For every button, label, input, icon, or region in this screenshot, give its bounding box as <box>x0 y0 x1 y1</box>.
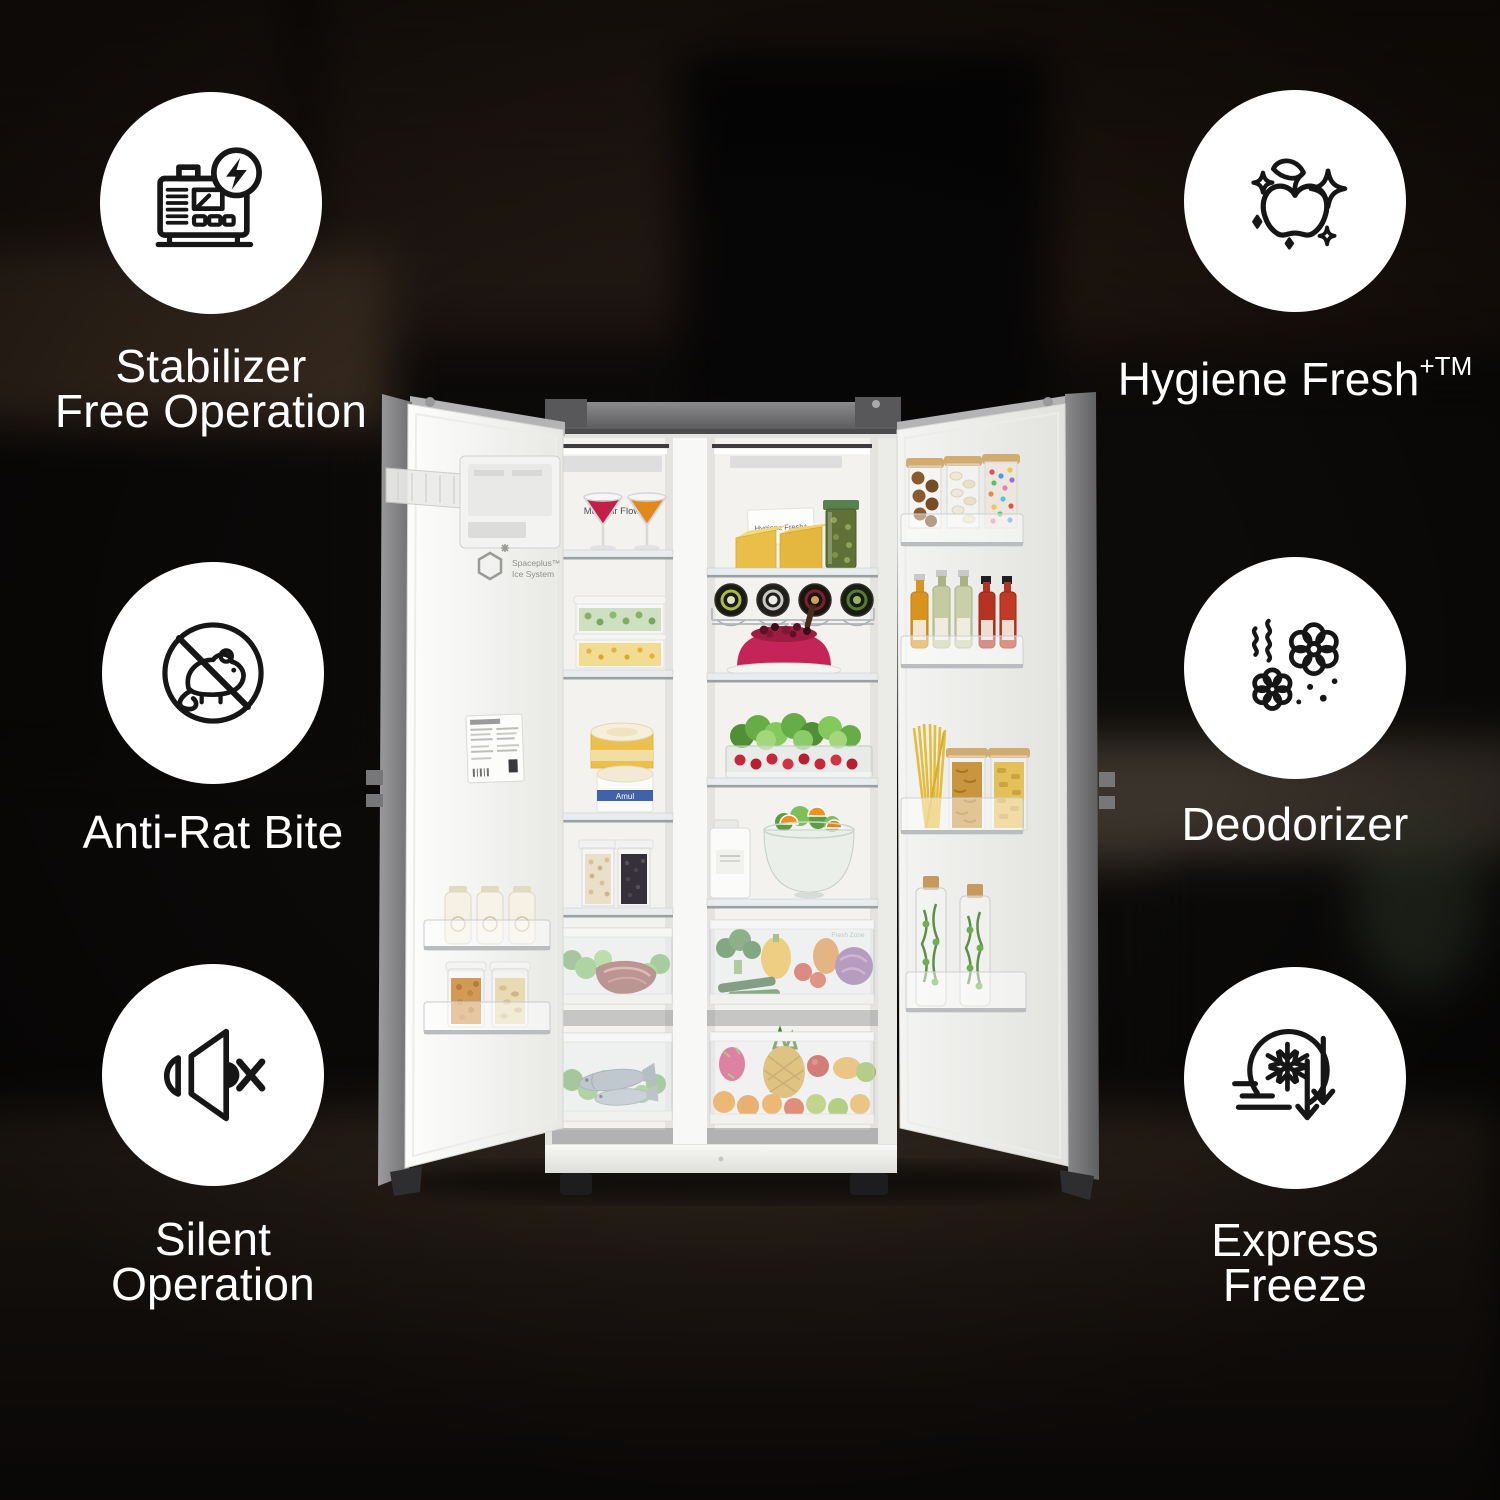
refrigerator-image: Multi Air Flow <box>360 380 1150 1210</box>
feature-badge <box>102 562 324 784</box>
feature-anti-rat-bite: Anti-Rat Bite <box>0 562 433 855</box>
freezer-shelf-icecream: Amul <box>591 723 653 812</box>
svg-text:Ice System: Ice System <box>512 569 554 579</box>
feature-label: Deodorizer <box>1075 802 1500 847</box>
icecream-brand-label: Amul <box>616 792 634 801</box>
freezer-shelf-containers <box>574 596 666 668</box>
speaker-mute-icon <box>147 1009 279 1141</box>
deodorizer-flowers-icon <box>1229 602 1361 734</box>
feature-label: Silent Operation <box>0 1217 433 1307</box>
stabilizer-icon <box>145 137 277 269</box>
anti-rat-icon <box>147 607 279 739</box>
apple-sparkles-icon <box>1229 135 1361 267</box>
svg-text:Spaceplus™: Spaceplus™ <box>512 558 560 568</box>
feature-label: Express Freeze <box>1075 1218 1500 1308</box>
product-feature-infographic: Multi Air Flow <box>0 0 1500 1500</box>
freezer-drawer-meat <box>557 928 672 1004</box>
feature-deodorizer: Deodorizer <box>1075 557 1500 847</box>
trademark-superscript: +TM <box>1420 351 1473 381</box>
olive-jar <box>823 500 859 568</box>
feature-label: Hygiene Fresh+TM <box>1075 344 1500 402</box>
water-jug <box>710 820 750 898</box>
feature-label: Anti-Rat Bite <box>0 810 433 855</box>
energy-label <box>466 714 524 783</box>
right-door-bin-jars <box>901 454 1023 546</box>
feature-silent-operation: Silent Operation <box>0 964 433 1307</box>
feature-badge <box>100 92 322 314</box>
feature-badge <box>1184 967 1406 1189</box>
fridge-drawer-fruits <box>710 1030 876 1124</box>
feature-badge <box>102 964 324 1186</box>
feature-hygiene-fresh: Hygiene Fresh+TM <box>1075 90 1500 402</box>
feature-stabilizer-free-operation: Stabilizer Free Operation <box>0 92 431 434</box>
feature-label: Stabilizer Free Operation <box>0 344 431 434</box>
feature-badge <box>1184 557 1406 779</box>
express-freeze-icon <box>1229 1012 1361 1144</box>
fridge-drawer-vegetables: Fresh Zone <box>710 920 874 1004</box>
right-door-bin-sauces <box>901 570 1023 668</box>
fridge-cabinet: Multi Air Flow <box>545 397 901 1195</box>
feature-badge <box>1184 90 1406 312</box>
freezer-drawer-fish <box>557 1033 672 1121</box>
feature-express-freeze: Express Freeze <box>1075 967 1500 1308</box>
